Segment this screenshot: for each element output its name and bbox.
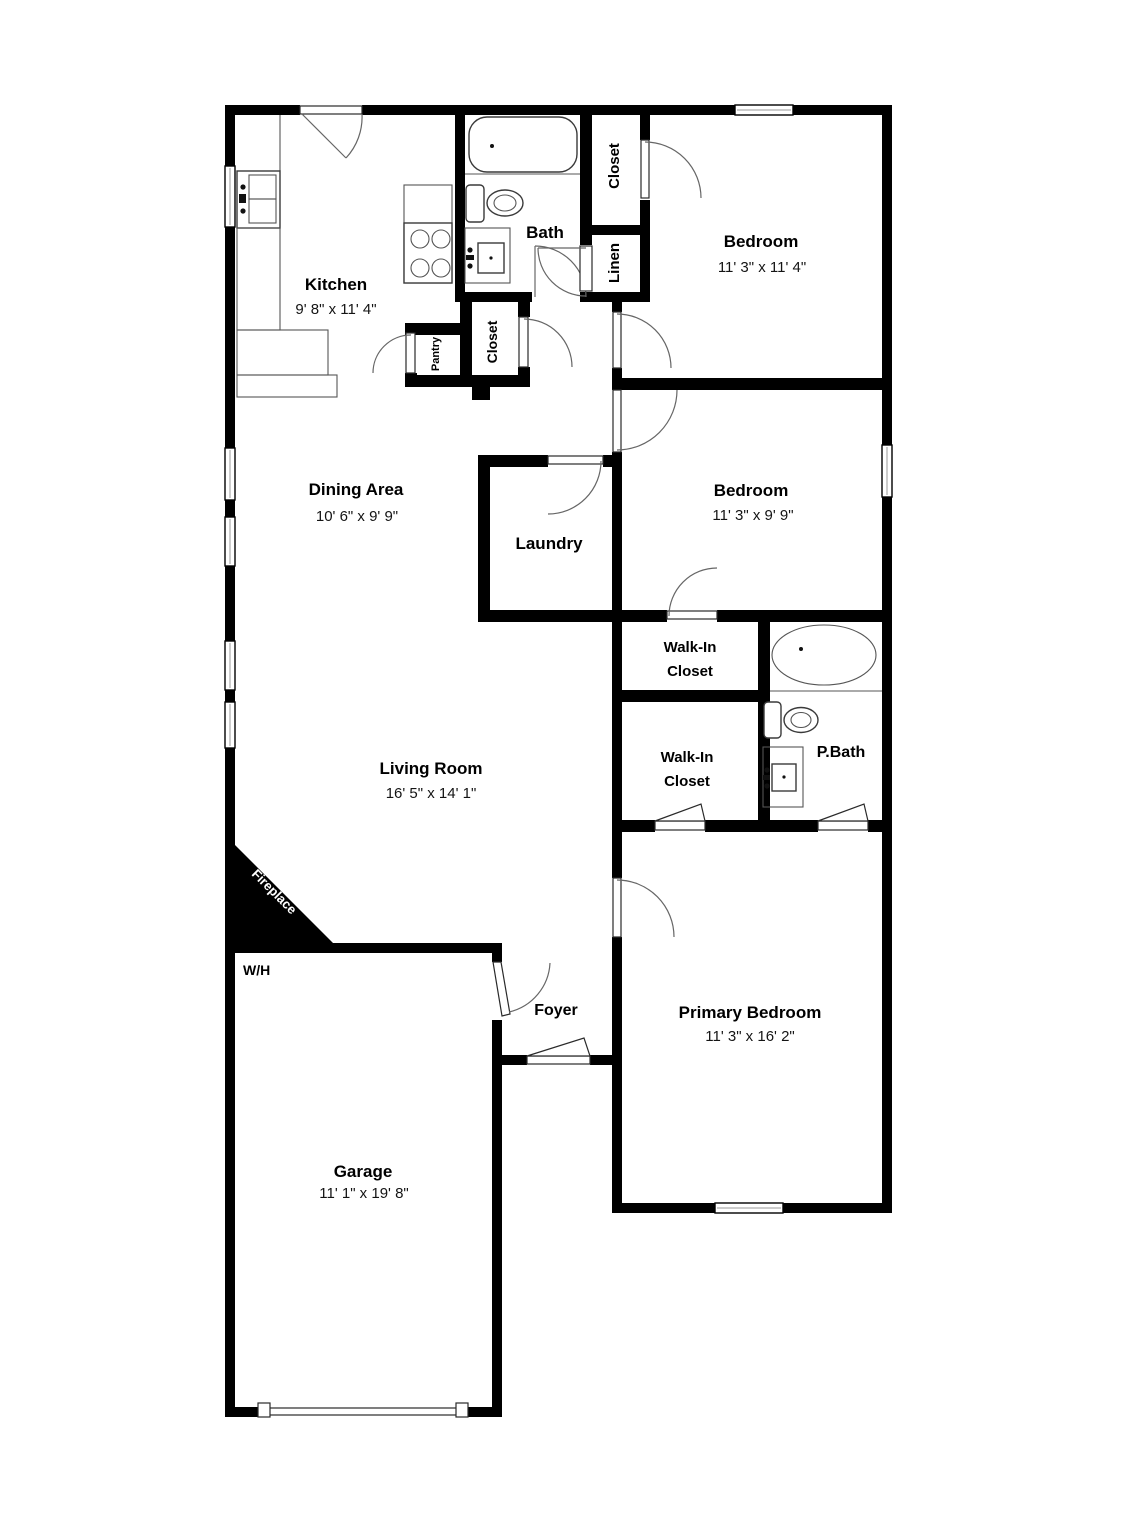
pantry-door [373,333,415,373]
foyer-label: Foyer [534,1002,578,1019]
wall [235,943,502,953]
pbath-label: P.Bath [817,744,866,761]
door-swing [538,248,586,296]
wall [603,455,622,467]
bedroom1-door [613,312,671,368]
window [225,166,235,227]
wall [592,225,640,235]
wall [622,690,758,702]
wall [868,820,892,832]
wall [225,500,235,517]
hall-closet-label: Closet [484,320,500,363]
window [225,448,235,500]
wh-label: W/H [243,962,270,978]
wall [793,105,892,115]
wall [882,105,892,445]
dining-label: Dining Area [309,480,404,499]
primary-label: Primary Bedroom [679,1003,822,1022]
door-swing [669,568,717,616]
door-leaf [300,106,362,114]
wall [612,820,655,832]
wall [455,292,532,302]
wall [518,367,530,387]
door-leaf [641,140,649,198]
wall [478,467,490,610]
wall [455,105,465,302]
wall [612,832,622,878]
wall [717,610,882,622]
toilet-icon [466,185,523,222]
door-leaf [667,611,717,619]
bedroom2-label: Bedroom [714,481,789,500]
window [882,445,892,497]
door-swing [645,142,701,198]
wall [225,227,235,448]
door-swing [527,1038,590,1056]
door-leaf [613,878,621,937]
living-label: Living Room [380,759,483,778]
stove-icon [404,185,452,283]
door-swing [617,880,674,937]
wall [492,1020,502,1417]
wall [612,452,622,820]
wall [518,302,530,317]
wall [612,937,622,1203]
wall [225,690,235,702]
wall [225,105,300,115]
door-leaf [818,821,868,830]
wall [225,566,235,641]
laundry-door [548,456,603,514]
pantry-label: Pantry [430,336,442,371]
door-leaf [548,456,603,464]
wic1-door [667,568,717,619]
door-swing [818,804,868,821]
wall [362,105,735,115]
labels: Kitchen 9' 8" x 11' 4" Bath Closet Linen… [243,143,865,1202]
door-swing [617,314,671,368]
wic2-door [655,804,705,830]
oval-bathtub-icon [770,625,882,691]
wall [612,368,622,390]
bathtub-icon [465,117,580,174]
door-leaf [493,962,510,1016]
garage-label: Garage [334,1162,393,1181]
bath-label: Bath [526,223,564,242]
linen-door [538,246,592,296]
door-leaf [655,821,705,830]
door-swing [617,390,677,450]
closet-label: Closet [606,143,623,189]
wall [783,1203,892,1213]
wall [478,610,667,622]
sink-vanity-icon [465,228,510,283]
door-leaf [406,333,415,373]
toilet-icon [764,702,818,738]
kitchen-door [300,106,362,158]
wall [460,302,472,375]
door-leaf [613,312,621,368]
wall [492,1055,527,1065]
door-swing [302,114,346,158]
floor-plan: Kitchen 9' 8" x 11' 4" Bath Closet Linen… [0,0,1129,1536]
garage-dims: 11' 1" x 19' 8" [319,1185,409,1202]
wall [580,105,592,245]
front-door [527,1038,590,1064]
window [225,641,235,690]
primary-dims: 11' 3" x 16' 2" [705,1028,795,1045]
window [715,1203,783,1213]
pbath-door [818,804,868,830]
hall-closet-door [519,317,572,367]
door-leaf [580,246,592,291]
wall [612,302,622,312]
wall [405,375,530,387]
kitchen-label: Kitchen [305,275,367,294]
linen-label: Linen [606,243,623,283]
kitchen-sink-icon [237,115,280,228]
wall [640,200,650,302]
door-swing [655,804,705,821]
wall [640,105,650,140]
bedroom2-dims: 11' 3" x 9' 9" [712,507,793,524]
wic2-label-line2: Closet [664,773,710,790]
dining-dims: 10' 6" x 9' 9" [316,508,398,525]
wall [622,378,882,390]
door-swing [373,335,411,373]
floor-plan-drawing: Kitchen 9' 8" x 11' 4" Bath Closet Linen… [0,0,1129,1536]
kitchen-dims: 9' 8" x 11' 4" [295,301,376,318]
wall [580,292,650,302]
closet-door [641,140,701,198]
wic2-label-line1: Walk-In [661,749,714,766]
door-swing [346,114,362,158]
wall [225,748,235,1417]
wic1-label-line2: Closet [667,663,713,680]
door-swing [548,461,601,514]
door-leaf [519,317,528,367]
laundry-label: Laundry [515,534,583,553]
window [225,517,235,566]
wall [478,455,548,467]
wall [882,497,892,1213]
bedroom2-door [613,390,677,452]
bedroom1-label: Bedroom [724,232,799,251]
door-leaf [527,1056,590,1064]
garage-door [258,1403,468,1417]
primary-door [613,878,674,937]
wall [472,387,490,400]
wic1-label-line1: Walk-In [664,639,717,656]
door-swing [524,319,572,367]
door-leaf [613,390,621,452]
wall [612,1203,715,1213]
wall [225,105,235,166]
window [225,702,235,748]
wall [705,820,818,832]
bedroom1-dims: 11' 3" x 11' 4" [718,259,806,276]
window [735,105,793,115]
living-dims: 16' 5" x 14' 1" [386,785,477,802]
